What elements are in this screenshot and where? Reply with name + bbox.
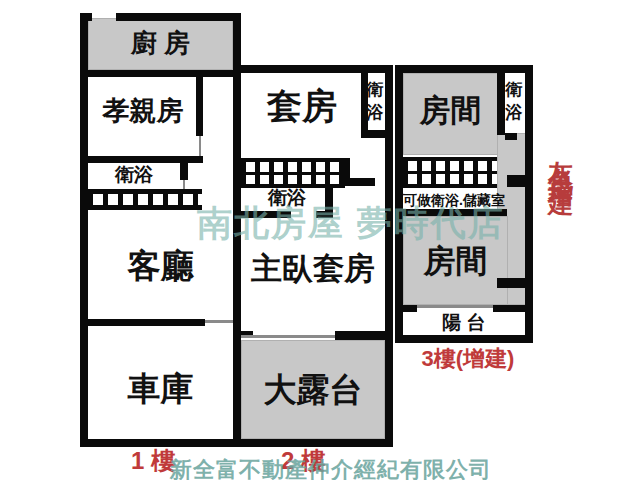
floor3-tag: 3樓(增建) — [412, 344, 524, 374]
wall — [395, 65, 533, 73]
wall — [88, 156, 203, 163]
wall — [342, 178, 375, 186]
wall — [116, 13, 241, 21]
wall — [180, 163, 188, 180]
garage-label: 車庫 — [88, 370, 233, 408]
wall — [395, 335, 533, 343]
stairs-floor1 — [88, 189, 202, 210]
balcony-edge-line — [417, 305, 493, 308]
door-line — [205, 320, 233, 323]
suite-label: 套房 — [241, 86, 363, 126]
wall — [493, 305, 533, 312]
door-line — [199, 136, 201, 157]
stairs-floor2 — [241, 158, 345, 188]
wall — [525, 65, 533, 343]
wall — [88, 70, 233, 77]
balcony-label: 陽 台 — [403, 312, 525, 334]
terrace-edge-line — [241, 335, 337, 338]
wall — [88, 319, 205, 326]
gray-note: 灰色是增建 — [545, 141, 578, 176]
kitchen-label: 廚 房 — [88, 29, 233, 59]
bathroom1-label: 衛浴 — [88, 164, 180, 186]
terrace-label: 大露台 — [241, 371, 385, 409]
parents-room-label: 孝親房 — [88, 96, 198, 127]
wall — [233, 65, 393, 73]
wall — [80, 13, 92, 21]
suite-bathroom-label: 衛浴 — [365, 79, 385, 125]
room3-bottom-label: 房間 — [403, 243, 508, 280]
wall — [507, 175, 525, 187]
door-line — [183, 180, 185, 189]
wall — [403, 305, 417, 312]
wall — [342, 158, 350, 179]
floor-plan-canvas: 廚 房 孝親房 衛浴 客廳 車庫 套房 衛浴 衛浴 主臥套房 大露台 房間 衛浴… — [0, 0, 640, 480]
brand-watermark: 南北房屋 夢時代店 — [197, 200, 505, 247]
living-room-label: 客廳 — [88, 247, 233, 285]
master-suite-label: 主臥套房 — [241, 251, 385, 287]
wall — [505, 133, 517, 140]
company-watermark: 新全富不動產仲介經紀有限公司 — [170, 455, 492, 480]
wall — [335, 331, 393, 340]
wall — [80, 13, 88, 447]
bathroom3-label: 衛浴 — [504, 79, 524, 125]
room3-top-label: 房間 — [403, 93, 498, 129]
stairs-floor3 — [403, 157, 497, 188]
wall — [361, 130, 385, 138]
wall — [385, 65, 393, 447]
